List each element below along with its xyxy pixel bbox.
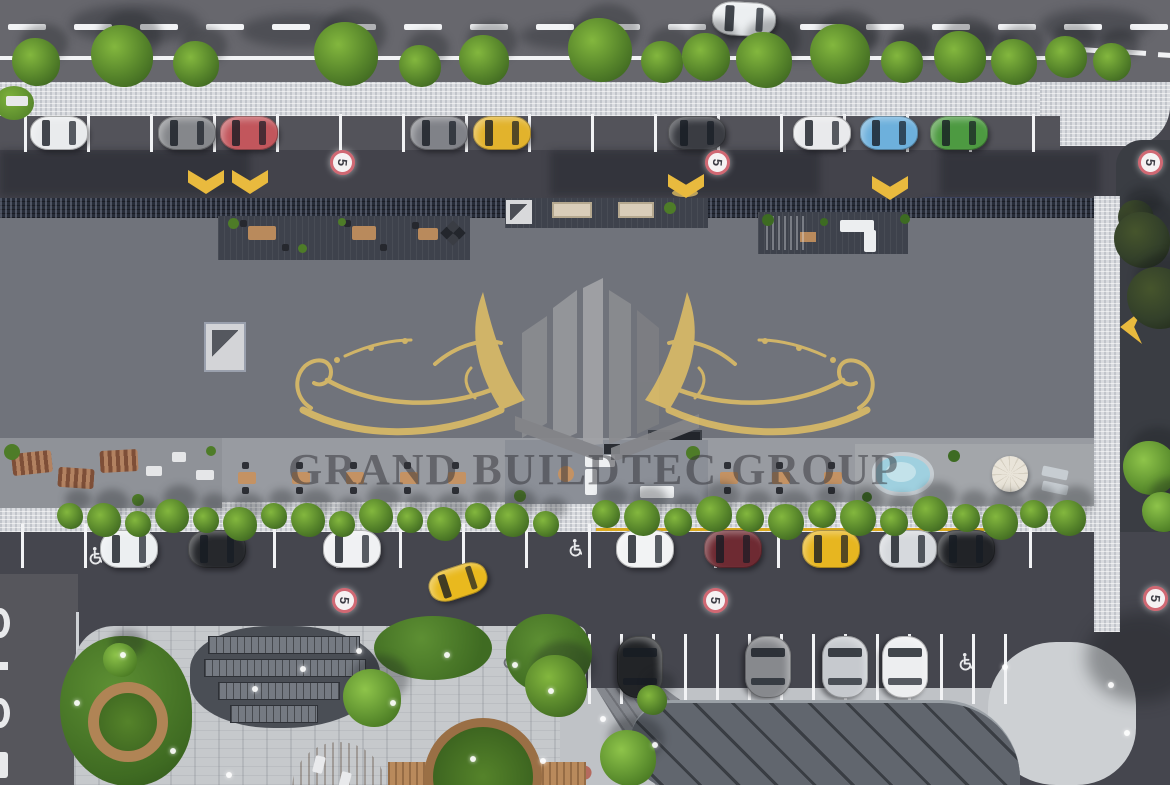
tree-canopy — [664, 508, 692, 536]
tree-canopy — [1050, 500, 1086, 536]
path-light — [540, 758, 546, 764]
path-light — [74, 700, 80, 706]
path-light — [444, 652, 450, 658]
tree-canopy — [934, 31, 986, 83]
tree-canopy — [736, 32, 792, 88]
tree-canopy — [736, 504, 764, 532]
tree-canopy — [624, 500, 660, 536]
tree-canopy — [291, 503, 325, 537]
tree-canopy — [768, 504, 804, 540]
site-plan-rendering: Вход Д Вход Г Вход В Вход Б Вход А 55555… — [0, 0, 1170, 785]
tree-canopy — [103, 643, 137, 677]
tree-canopy — [952, 504, 980, 532]
tree-canopy — [641, 41, 683, 83]
tree-canopy — [880, 508, 908, 536]
tree-canopy — [261, 503, 287, 529]
tree-canopy — [125, 511, 151, 537]
tree-canopy — [155, 499, 189, 533]
path-light — [512, 662, 518, 668]
tree-canopy — [1020, 500, 1048, 528]
tree-canopy — [465, 503, 491, 529]
tree-canopy — [329, 511, 355, 537]
tree-canopy — [840, 500, 876, 536]
tree-canopy — [525, 655, 587, 717]
path-light — [390, 700, 396, 706]
tree-canopy — [399, 45, 441, 87]
tree-canopy — [173, 41, 219, 87]
path-light — [1002, 664, 1008, 670]
kiosk — [6, 96, 28, 106]
ring-planter — [88, 682, 168, 762]
tree-canopy — [1045, 36, 1087, 78]
tree-canopy — [881, 41, 923, 83]
path-light — [1108, 682, 1114, 688]
tree-canopy — [810, 24, 870, 84]
tree-canopy — [427, 507, 461, 541]
tree-canopy — [193, 507, 219, 533]
tree-canopy — [1127, 267, 1170, 329]
tree-canopy — [982, 504, 1018, 540]
path-light — [356, 648, 362, 654]
path-light — [120, 652, 126, 658]
path-light — [600, 716, 606, 722]
tree-canopy — [397, 507, 423, 533]
path-light — [548, 688, 554, 694]
tree-canopy — [533, 511, 559, 537]
tree-canopy — [91, 25, 153, 87]
tree-canopy — [568, 18, 632, 82]
tree-canopy — [912, 496, 948, 532]
tree-canopy — [682, 33, 730, 81]
tree-canopy — [637, 685, 667, 715]
tree-canopy — [1142, 492, 1170, 532]
tree-canopy — [459, 35, 509, 85]
tree-canopy — [592, 500, 620, 528]
path-light — [252, 686, 258, 692]
path-light — [1124, 730, 1130, 736]
path-light — [170, 748, 176, 754]
path-light — [470, 756, 476, 762]
tree-canopy — [1093, 43, 1131, 81]
tree-canopy — [359, 499, 393, 533]
tree-canopy — [991, 39, 1037, 85]
tree-canopy — [223, 507, 257, 541]
tree-canopy — [808, 500, 836, 528]
path-light — [226, 772, 232, 778]
tree-canopy — [600, 730, 656, 785]
tree-canopy — [314, 22, 378, 86]
tree-canopy — [87, 503, 121, 537]
vegetation-layer — [0, 0, 1170, 785]
tree-canopy — [57, 503, 83, 529]
path-light — [652, 742, 658, 748]
tree-canopy — [495, 503, 529, 537]
tree-canopy — [12, 38, 60, 86]
path-light — [300, 666, 306, 672]
ring-planter — [424, 718, 542, 785]
tree-canopy — [343, 669, 401, 727]
tree-canopy — [696, 496, 732, 532]
